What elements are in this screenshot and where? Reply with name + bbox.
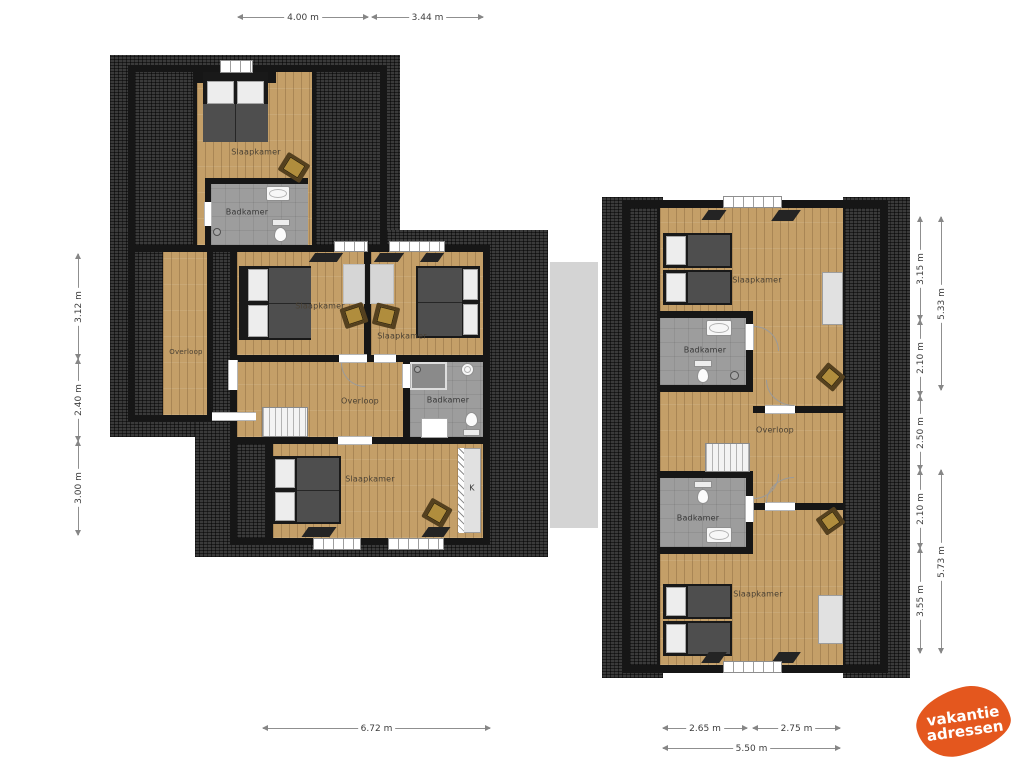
- room-label: K: [469, 484, 474, 493]
- sink-icon: [706, 320, 732, 336]
- room-label: Badkamer: [677, 514, 719, 523]
- room-label: Badkamer: [226, 208, 268, 217]
- dim-label: 2.10 m: [916, 490, 926, 528]
- wall: [660, 311, 753, 318]
- pillow: [666, 587, 686, 616]
- pillow: [463, 269, 478, 300]
- duvet: [688, 586, 730, 617]
- pillow: [275, 459, 295, 488]
- door-opening: [204, 202, 212, 226]
- pillow: [666, 624, 686, 653]
- single-bed: [663, 584, 732, 619]
- door-opening: [745, 496, 754, 522]
- dim-label: 5.50 m: [733, 744, 771, 754]
- dim-label: 3.15 m: [916, 250, 926, 288]
- toilet-icon: [272, 219, 290, 243]
- toilet-icon: [694, 481, 712, 506]
- room-label: Slaapkamer: [732, 276, 782, 285]
- toilet-tank: [272, 219, 290, 226]
- duvet: [688, 235, 730, 266]
- knee-roof-west: [630, 208, 657, 665]
- room-label: Slaapkamer: [345, 475, 395, 484]
- room-label: Overloop: [756, 426, 794, 435]
- door-opening: [765, 502, 795, 511]
- dim-label: 3.00 m: [74, 469, 84, 507]
- double-bed: [273, 456, 341, 524]
- duvet-split: [297, 490, 339, 491]
- connector-section: [550, 262, 598, 528]
- door-opening: [745, 324, 754, 350]
- wardrobe: [818, 595, 843, 644]
- toilet-tank: [463, 429, 480, 436]
- overloop-west-east-wall: [207, 252, 213, 415]
- knee-roof-east: [845, 208, 880, 665]
- roof-notch-bottom: [663, 673, 843, 678]
- duvet: [688, 272, 730, 303]
- window: [723, 196, 782, 208]
- pillow: [275, 492, 295, 521]
- dim-label: 2.75 m: [778, 724, 816, 734]
- double-bed: [416, 266, 480, 338]
- floorplan-canvas: Slaapkamer Badkamer Overloop Slaapkamer …: [0, 0, 1024, 768]
- duvet: [688, 623, 730, 654]
- door-opening: [339, 354, 367, 363]
- dim-right-inner-4: 2.10 m: [920, 470, 921, 548]
- toilet-bowl: [465, 412, 478, 427]
- dim-label: 2.50 m: [916, 414, 926, 452]
- dim-bottom-right-2: 2.75 m: [753, 728, 840, 729]
- wall: [660, 471, 753, 478]
- dim-label: 6.72 m: [358, 724, 396, 734]
- rug: [371, 265, 393, 303]
- window: [220, 60, 253, 73]
- single-bed: [663, 233, 732, 268]
- nightstand: [268, 72, 276, 83]
- single-bed: [663, 270, 732, 305]
- door-opening: [228, 360, 238, 390]
- dim-bottom-right-total: 5.50 m: [663, 748, 840, 749]
- sink-icon: [266, 186, 290, 201]
- room-label: Slaapkamer: [733, 590, 783, 599]
- door-opening: [212, 412, 256, 421]
- dim-right-inner-2: 2.10 m: [920, 320, 921, 396]
- dim-label: 3.44 m: [409, 13, 447, 23]
- knee-roof-left: [135, 72, 193, 245]
- dim-bottom-right-1: 2.65 m: [663, 728, 747, 729]
- door-opening: [338, 436, 372, 445]
- shower-drain-icon: [213, 228, 221, 236]
- duvet-split: [418, 302, 462, 303]
- door-opening: [402, 364, 411, 388]
- sink-icon: [706, 527, 732, 543]
- room-label: Slaapkamer: [231, 148, 281, 157]
- duvet-split: [235, 104, 236, 142]
- knee-wall: [265, 444, 273, 538]
- single-bed: [663, 621, 732, 656]
- pillow: [237, 81, 264, 104]
- toilet-tank: [694, 481, 712, 488]
- dim-bottom-left: 6.72 m: [263, 728, 490, 729]
- pillow: [463, 304, 478, 335]
- window: [388, 538, 444, 550]
- shower-drain-icon: [414, 366, 421, 373]
- double-bed: [203, 72, 268, 142]
- dim-label: 3.55 m: [916, 582, 926, 620]
- sink-icon: [461, 363, 474, 376]
- shower-drain-icon: [730, 371, 739, 380]
- wall: [660, 547, 753, 554]
- knee-roof-south: [237, 444, 265, 538]
- toilet-bowl: [274, 227, 287, 242]
- dim-left-1: 3.12 m: [78, 254, 79, 359]
- room-label: Slaapkamer: [295, 302, 345, 311]
- dim-right-inner-5: 3.55 m: [920, 548, 921, 653]
- pillow: [207, 81, 234, 104]
- toilet-bowl: [697, 368, 709, 383]
- wall: [660, 385, 753, 392]
- dim-left-2: 2.40 m: [78, 359, 79, 441]
- window: [334, 241, 368, 252]
- room-label: Overloop: [341, 397, 379, 406]
- dim-label: 2.40 m: [74, 381, 84, 419]
- pillow: [666, 273, 686, 302]
- room-label: Slaapkamer: [377, 332, 427, 341]
- toilet-tank: [694, 360, 712, 367]
- toilet-icon: [462, 412, 481, 436]
- dim-label: 3.12 m: [74, 288, 84, 326]
- room-label: Badkamer: [684, 346, 726, 355]
- folding-door-icon: [458, 448, 464, 533]
- vakantieadressen-logo: vakantie adressen: [910, 686, 1018, 762]
- pillow: [666, 236, 686, 265]
- room-label: Overloop: [169, 348, 202, 356]
- left-west-wall: [128, 65, 135, 422]
- pillow: [248, 269, 268, 301]
- door-opening: [374, 354, 396, 363]
- dim-label: 5.73 m: [937, 543, 947, 581]
- wardrobe: [822, 272, 843, 325]
- dim-label: 5.33 m: [937, 285, 947, 323]
- dim-label: 4.00 m: [284, 13, 322, 23]
- dim-label: 2.10 m: [916, 339, 926, 377]
- window: [723, 661, 782, 673]
- toilet-bowl: [697, 489, 709, 504]
- door-opening: [765, 405, 795, 414]
- rug: [344, 265, 364, 303]
- pillow: [248, 305, 268, 337]
- knee-roof-right: [316, 72, 380, 245]
- stairs: [262, 407, 308, 437]
- dim-right-inner-3: 2.50 m: [920, 396, 921, 470]
- dim-top-1: 4.00 m: [238, 17, 368, 18]
- dim-label: 2.65 m: [686, 724, 724, 734]
- dim-right-outer-1: 5.33 m: [941, 217, 942, 390]
- overloop-west-floor: [163, 252, 207, 415]
- window: [313, 538, 361, 550]
- window: [389, 241, 445, 252]
- dim-left-3: 3.00 m: [78, 441, 79, 535]
- washer-icon: [421, 418, 448, 438]
- room-label: Badkamer: [427, 396, 469, 405]
- dim-right-outer-2: 5.73 m: [941, 470, 942, 653]
- stairs: [705, 443, 750, 472]
- dim-top-2: 3.44 m: [372, 17, 483, 18]
- toilet-icon: [694, 360, 712, 385]
- dim-right-inner-1: 3.15 m: [920, 217, 921, 320]
